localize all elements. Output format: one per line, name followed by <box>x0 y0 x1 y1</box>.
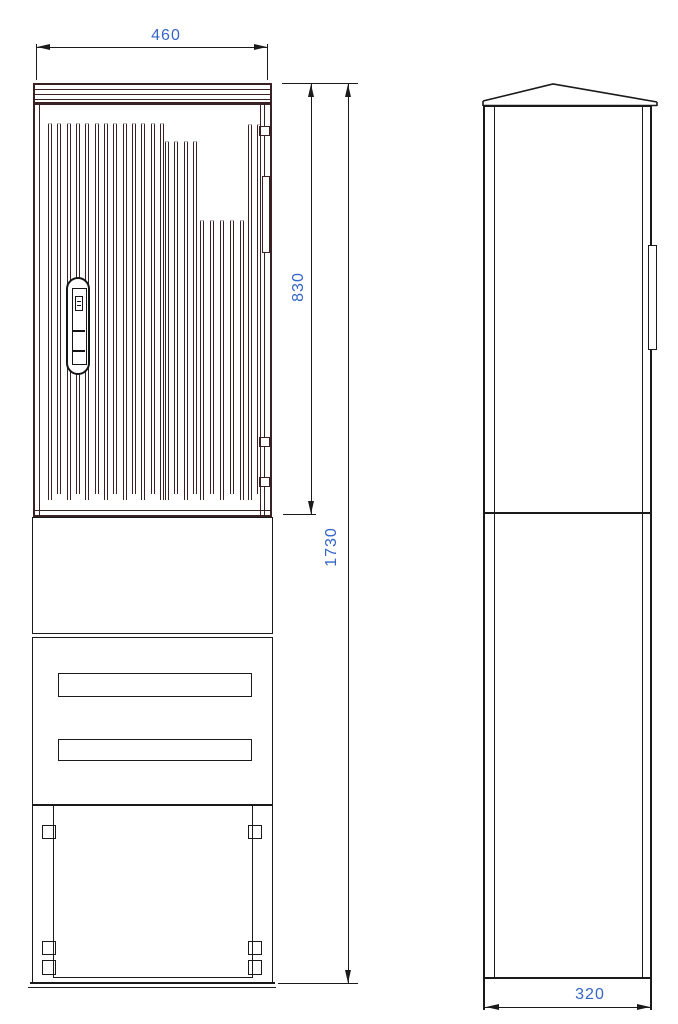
vent-rib <box>165 141 169 500</box>
vent-rib <box>230 220 234 494</box>
lock-keyhole-icon <box>75 296 83 311</box>
dim-width-arrow-left <box>37 44 50 50</box>
door-inner-right-line-1 <box>264 105 265 515</box>
base-tab-left-bottom <box>42 960 56 975</box>
dim-door-height-arrow-top <box>308 84 314 97</box>
base-tab-left-mid <box>42 941 56 955</box>
vent-rib <box>113 123 117 494</box>
drawing-canvas: 460 <box>0 0 678 1024</box>
door-inner-bottom-line <box>35 510 270 511</box>
dim-total-height-label: 1730 <box>323 527 341 567</box>
dim-depth-label: 320 <box>575 986 605 1004</box>
cable-slot-2 <box>58 739 252 761</box>
lock-divider-1 <box>73 330 85 332</box>
front-ground-line-1 <box>30 982 275 984</box>
dim-total-height-arrow-top <box>345 84 351 97</box>
lock-inner-plate <box>72 288 87 365</box>
dim-total-height-line <box>348 84 349 983</box>
front-mid-section <box>32 517 273 634</box>
dim-width-line <box>36 47 268 48</box>
base-tab-right-mid <box>248 941 262 955</box>
side-top-line <box>483 105 652 107</box>
side-mid-line <box>483 512 652 514</box>
vent-rib <box>48 123 52 500</box>
vent-rib <box>240 220 244 500</box>
front-ground-line-2 <box>28 987 276 988</box>
vent-rib <box>95 123 99 494</box>
vent-rib <box>210 220 214 494</box>
vent-rib <box>193 141 197 494</box>
roof-cap-line-3 <box>35 99 270 100</box>
dim-ext-door-bottom <box>283 514 316 515</box>
dim-door-height-arrow-bottom <box>308 501 314 514</box>
roof-cap-line-1 <box>35 89 270 90</box>
vent-rib <box>174 141 178 494</box>
front-roof-cap <box>33 83 272 104</box>
side-inner-left-line <box>494 107 495 978</box>
door-inner-left-line <box>39 105 40 515</box>
dim-depth-arrow-right <box>637 1004 650 1010</box>
side-outer-right-line <box>650 105 652 1010</box>
vent-rib <box>257 124 261 494</box>
side-hinge-plate <box>648 245 657 350</box>
door-hinge-middle <box>262 176 270 253</box>
vent-rib <box>248 124 252 500</box>
dim-width-label: 460 <box>151 27 181 45</box>
vent-rib <box>57 123 61 494</box>
vent-rib <box>200 220 204 500</box>
dim-depth-arrow-left <box>486 1004 499 1010</box>
base-tab-left-top <box>42 825 56 839</box>
base-inner-bottom-line <box>53 977 253 978</box>
vent-rib <box>123 123 127 500</box>
vent-rib <box>141 123 145 500</box>
vent-rib <box>184 141 188 500</box>
cable-slot-1 <box>58 673 252 697</box>
front-base-section <box>32 805 273 983</box>
keyhole-mark-2 <box>77 305 81 306</box>
base-tab-right-top <box>248 825 262 839</box>
keyhole-mark-1 <box>77 301 81 302</box>
side-inner-right-line <box>642 107 643 978</box>
dim-door-height-label: 830 <box>290 272 308 302</box>
front-slot-section <box>32 637 273 805</box>
lock-divider-2 <box>73 350 85 352</box>
dim-width-arrow-right <box>254 44 267 50</box>
roof-cap-line-2 <box>35 94 270 95</box>
base-tab-right-bottom <box>248 960 262 975</box>
dim-door-height-line <box>311 84 312 514</box>
side-outer-left-line <box>483 105 485 1010</box>
dim-depth-line <box>485 1007 651 1008</box>
vent-rib <box>151 123 155 494</box>
vent-rib <box>104 123 108 500</box>
vent-rib <box>220 220 224 500</box>
dim-width-ext-right <box>267 44 268 80</box>
side-bottom-line <box>483 977 652 979</box>
dim-ext-ground <box>278 983 358 984</box>
vent-rib <box>160 123 164 500</box>
dim-total-height-arrow-bottom <box>345 970 351 983</box>
vent-rib <box>132 123 136 494</box>
